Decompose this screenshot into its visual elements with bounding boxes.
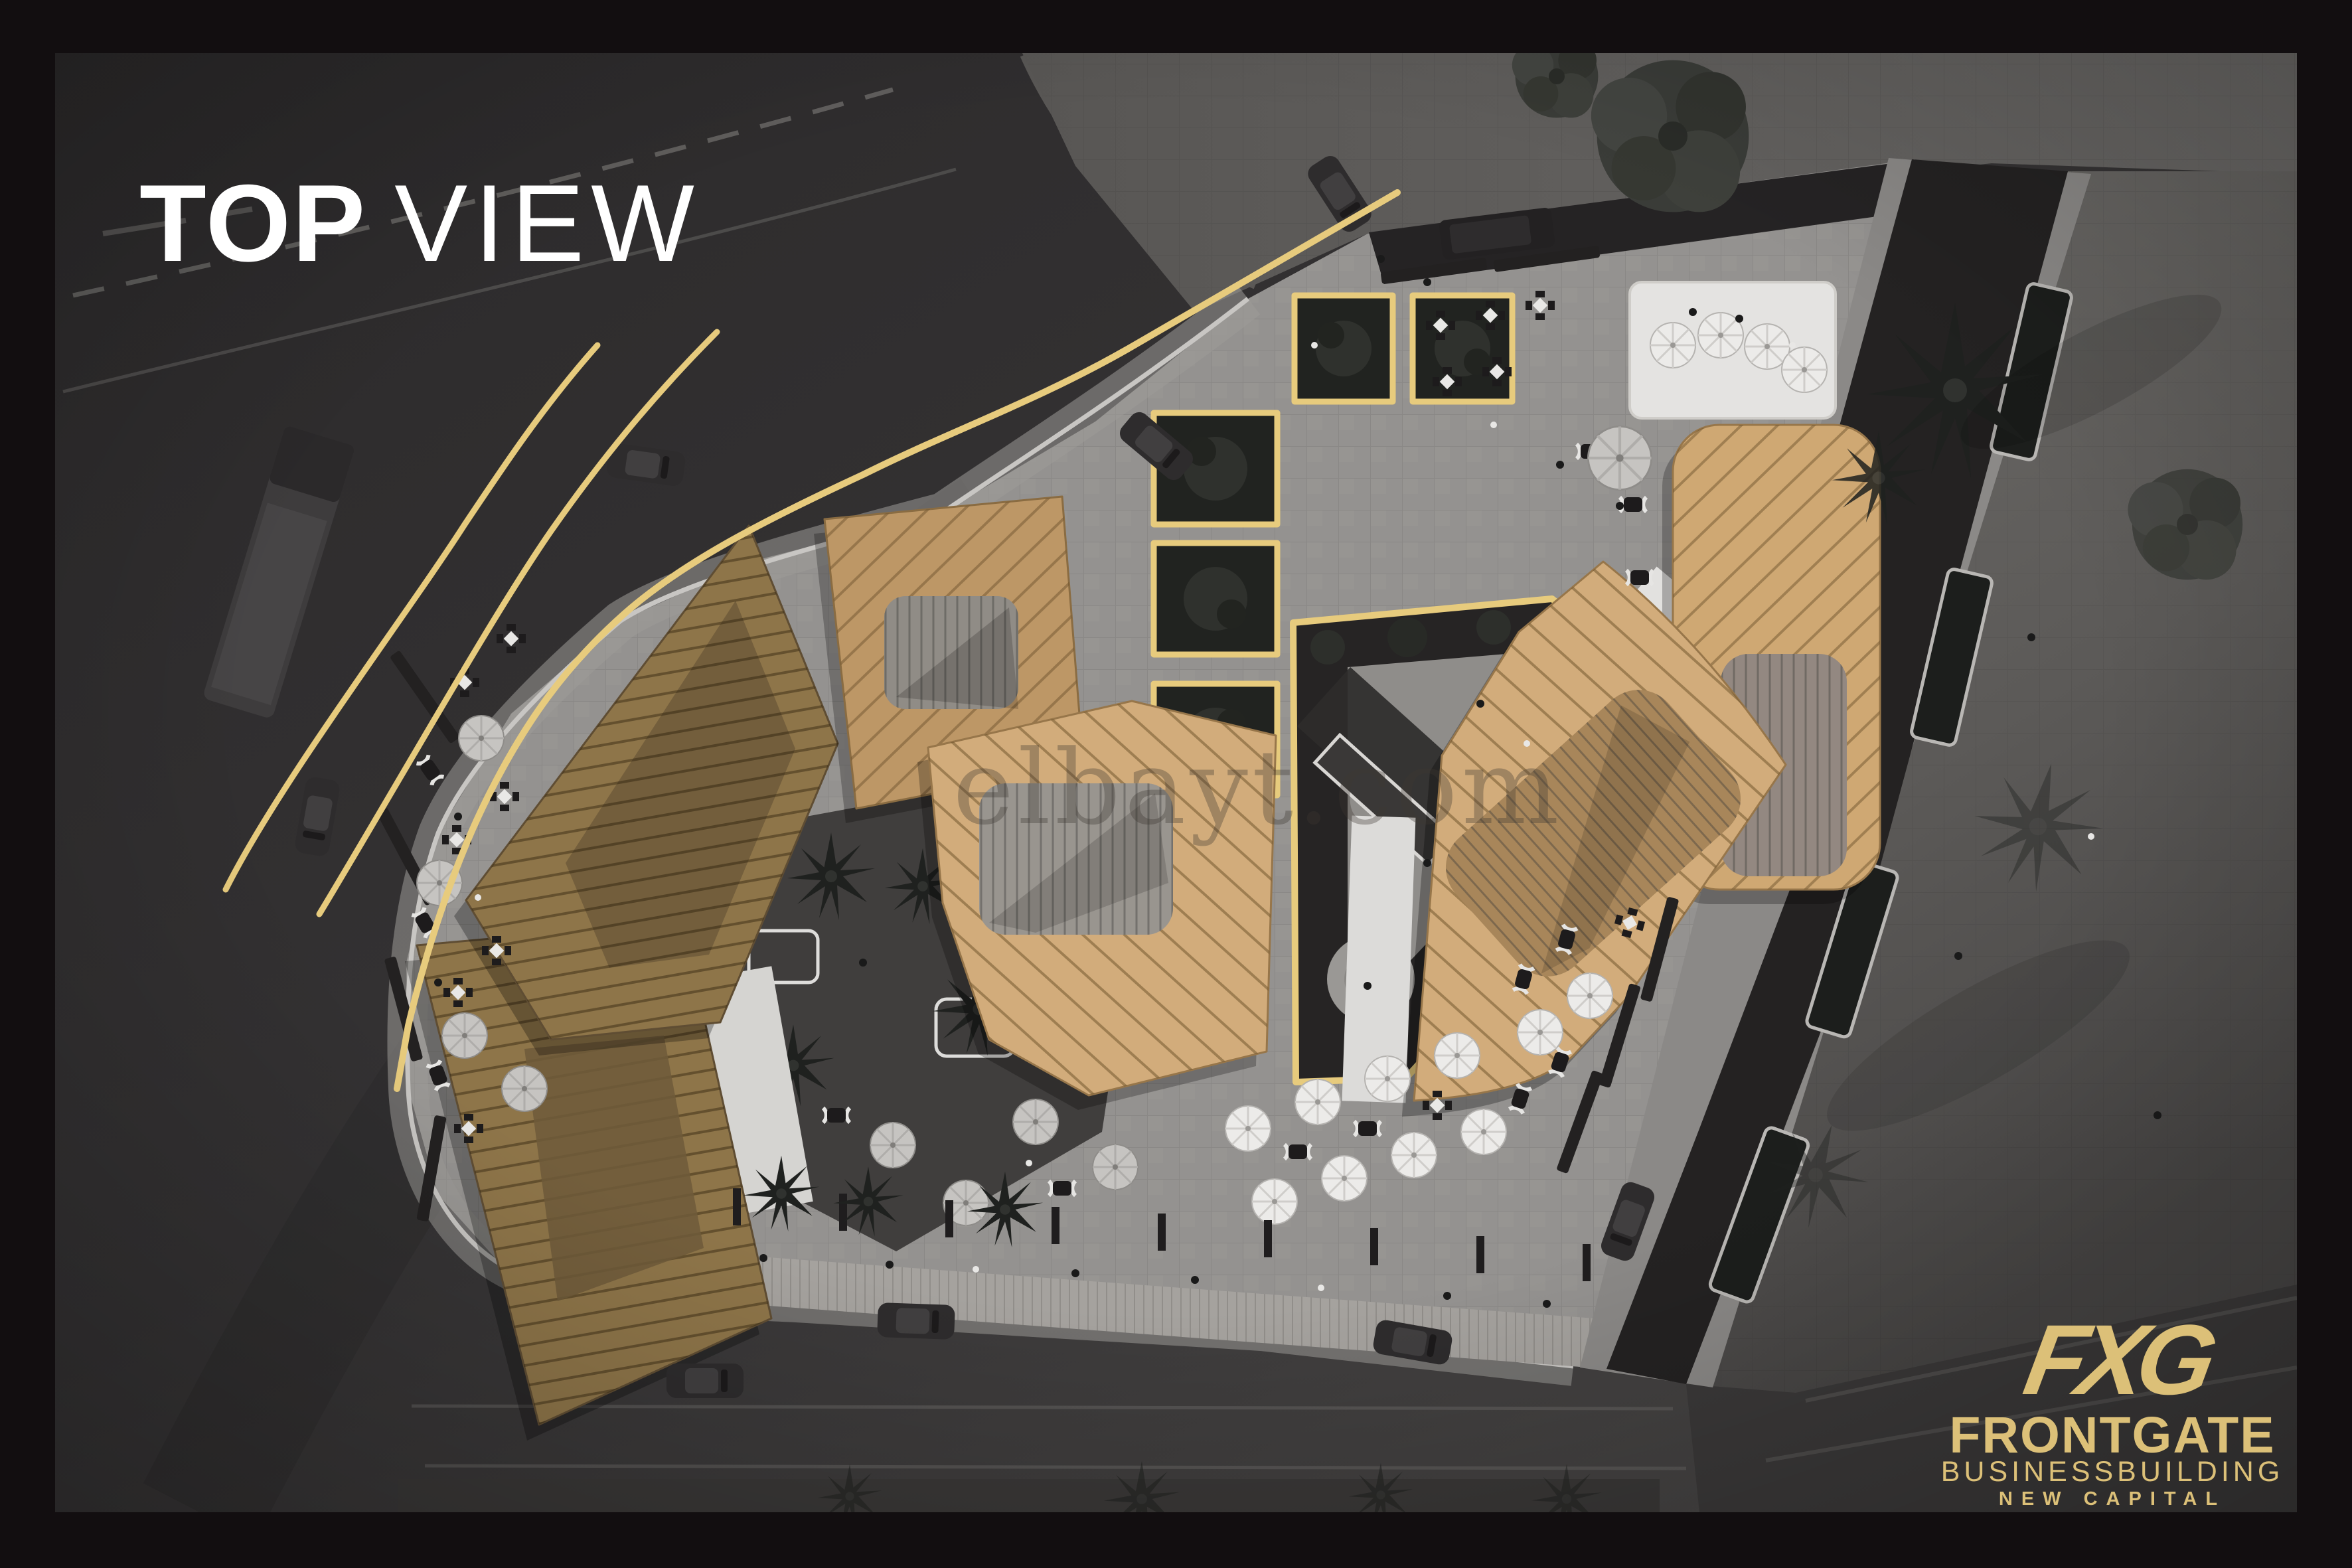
logo-monogram: FXG xyxy=(2017,1304,2222,1416)
title-view: VIEW xyxy=(394,162,701,284)
title-top: TOP xyxy=(139,162,366,284)
site-plan-rendering: elbayt.com TOPVIEW FXG FRONTGATE BUSINES… xyxy=(0,0,2352,1568)
logo-location: NEW CAPITAL xyxy=(1999,1488,2226,1510)
logo-division: BUSINESSBUILDING xyxy=(1941,1456,2284,1488)
top-view-poster: elbayt.com TOPVIEW FXG FRONTGATE BUSINES… xyxy=(0,0,2352,1568)
vignette-overlay xyxy=(55,53,2297,1512)
page-title: TOPVIEW xyxy=(139,162,701,284)
